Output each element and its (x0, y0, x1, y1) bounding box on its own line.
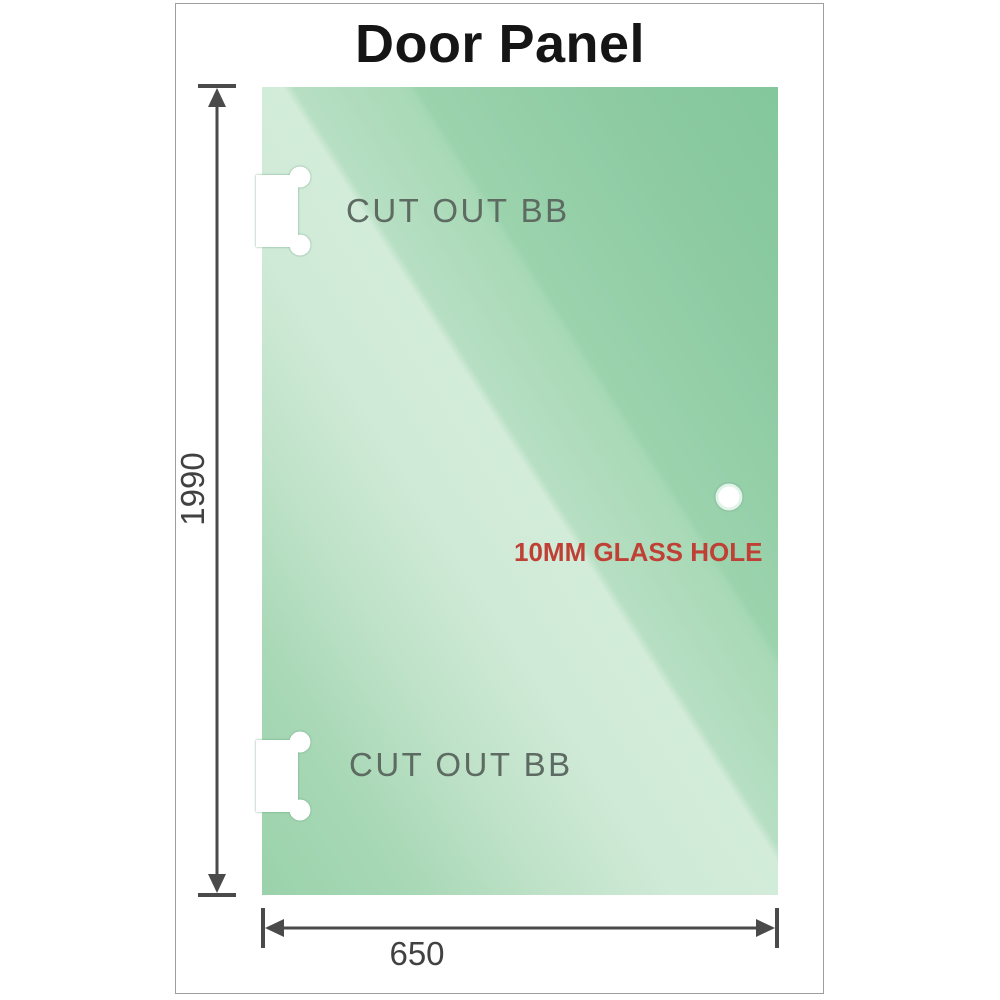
cutout-label-top: CUT OUT BB (346, 192, 570, 230)
cutout-label-bottom: CUT OUT BB (349, 746, 573, 784)
door-panel-diagram-page: Door Panel (0, 0, 1000, 1000)
width-dimension-arrow (263, 908, 777, 948)
diagram-canvas (0, 0, 1000, 1000)
glass-hole (717, 485, 741, 509)
height-dimension-label: 1990 (174, 452, 212, 525)
width-dimension-label: 650 (389, 935, 444, 973)
glass-hole-label: 10MM GLASS HOLE (514, 537, 762, 568)
